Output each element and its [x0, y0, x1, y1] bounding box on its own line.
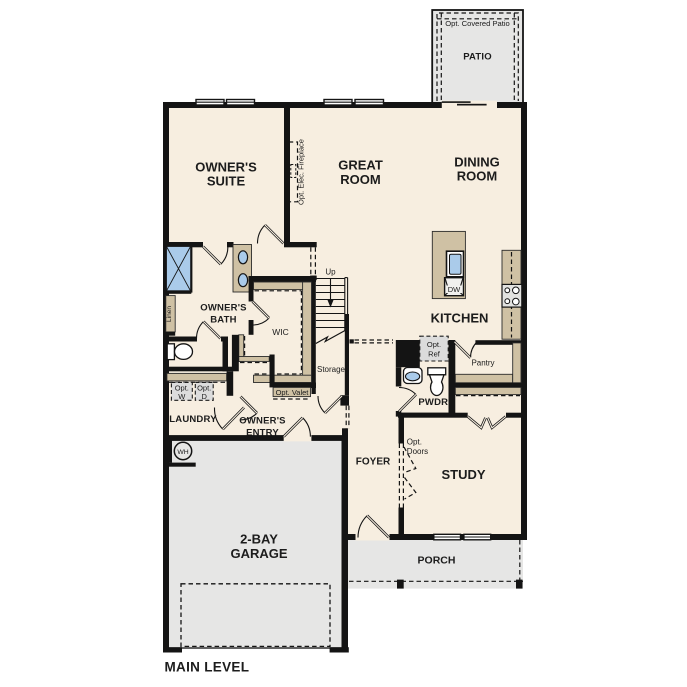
svg-text:Opt. Elec. Fireplace: Opt. Elec. Fireplace	[297, 139, 306, 205]
svg-text:SUITE: SUITE	[207, 174, 246, 189]
svg-text:DINING: DINING	[454, 155, 500, 170]
svg-text:GARAGE: GARAGE	[230, 546, 287, 561]
svg-text:Opt.: Opt.	[427, 340, 441, 349]
svg-text:ROOM: ROOM	[340, 172, 380, 187]
svg-text:W: W	[178, 392, 186, 401]
svg-text:Linen: Linen	[166, 306, 173, 322]
svg-text:BATH: BATH	[210, 315, 236, 326]
svg-text:Up: Up	[325, 268, 336, 277]
svg-text:Storage: Storage	[317, 365, 346, 374]
svg-text:2-BAY: 2-BAY	[240, 532, 278, 547]
svg-text:OWNER'S: OWNER'S	[195, 159, 257, 174]
svg-text:DW: DW	[448, 285, 461, 294]
svg-text:Opt.: Opt.	[407, 437, 422, 446]
svg-text:STUDY: STUDY	[441, 467, 485, 482]
svg-text:KITCHEN: KITCHEN	[431, 311, 489, 326]
svg-text:WIC: WIC	[272, 327, 289, 337]
svg-text:OWNER'S: OWNER'S	[200, 303, 246, 314]
svg-text:Ref: Ref	[428, 350, 441, 359]
svg-text:Doors: Doors	[407, 447, 428, 456]
svg-text:WH: WH	[177, 449, 188, 456]
svg-text:OWNER'S: OWNER'S	[239, 416, 285, 427]
svg-text:ROOM: ROOM	[457, 169, 497, 184]
svg-text:Opt. Covered Patio: Opt. Covered Patio	[445, 19, 510, 28]
svg-text:GREAT: GREAT	[338, 158, 383, 173]
svg-text:PATIO: PATIO	[463, 52, 492, 63]
svg-text:Opt. Valet: Opt. Valet	[276, 388, 310, 397]
svg-text:PORCH: PORCH	[418, 555, 456, 567]
svg-text:LAUNDRY: LAUNDRY	[169, 414, 217, 425]
svg-text:PWDR: PWDR	[418, 397, 448, 408]
svg-text:Pantry: Pantry	[471, 359, 494, 368]
svg-text:FOYER: FOYER	[356, 456, 391, 467]
svg-text:MAIN LEVEL: MAIN LEVEL	[165, 660, 250, 675]
svg-text:D: D	[201, 392, 207, 401]
